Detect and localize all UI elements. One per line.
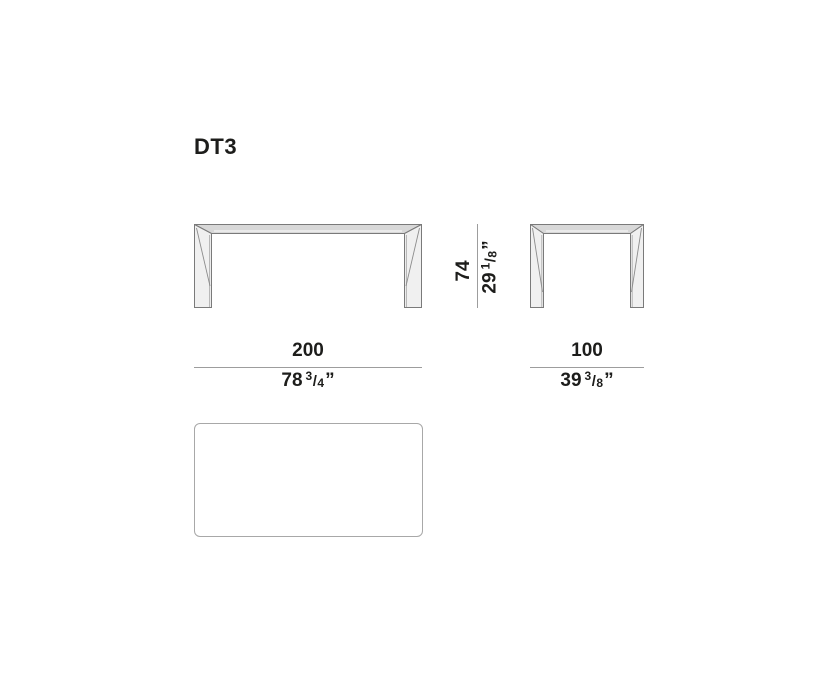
- fraction-numerator: 3: [306, 369, 313, 383]
- tabletop-front: [195, 225, 422, 234]
- inch-mark: ”: [325, 370, 335, 391]
- table-leg-front-right: [405, 225, 422, 308]
- side-width-inches-label: 393/8”: [530, 371, 644, 392]
- spec-sheet-page: DT3 74 291/8” 200 783/4” 100: [0, 0, 840, 679]
- fraction-denominator: 4: [317, 376, 324, 390]
- product-code-title: DT3: [194, 134, 237, 160]
- plan-view-drawing: [194, 423, 423, 537]
- front-width-cm-label: 200: [194, 341, 422, 361]
- front-elevation-drawing: [194, 224, 422, 308]
- side-width-dimension-line: [530, 367, 644, 368]
- inches-whole: 29: [480, 272, 501, 293]
- fraction-numerator: 1: [479, 263, 493, 270]
- inches-whole: 39: [560, 370, 581, 391]
- inch-mark: ”: [480, 240, 501, 250]
- fraction-denominator: 8: [486, 251, 500, 258]
- height-cm-label: 74: [454, 260, 474, 281]
- front-width-inches-label: 783/4”: [194, 371, 422, 392]
- height-inches-label: 291/8”: [481, 240, 502, 293]
- fraction-denominator: 8: [596, 376, 603, 390]
- fraction-numerator: 3: [585, 369, 592, 383]
- inches-whole: 78: [281, 370, 302, 391]
- tabletop-side: [531, 225, 644, 234]
- table-leg-front-left: [195, 225, 212, 308]
- fraction-slash: /: [483, 258, 500, 262]
- side-elevation-drawing: [530, 224, 644, 308]
- front-width-dimension-line: [194, 367, 422, 368]
- inch-mark: ”: [604, 370, 614, 391]
- side-width-cm-label: 100: [530, 341, 644, 361]
